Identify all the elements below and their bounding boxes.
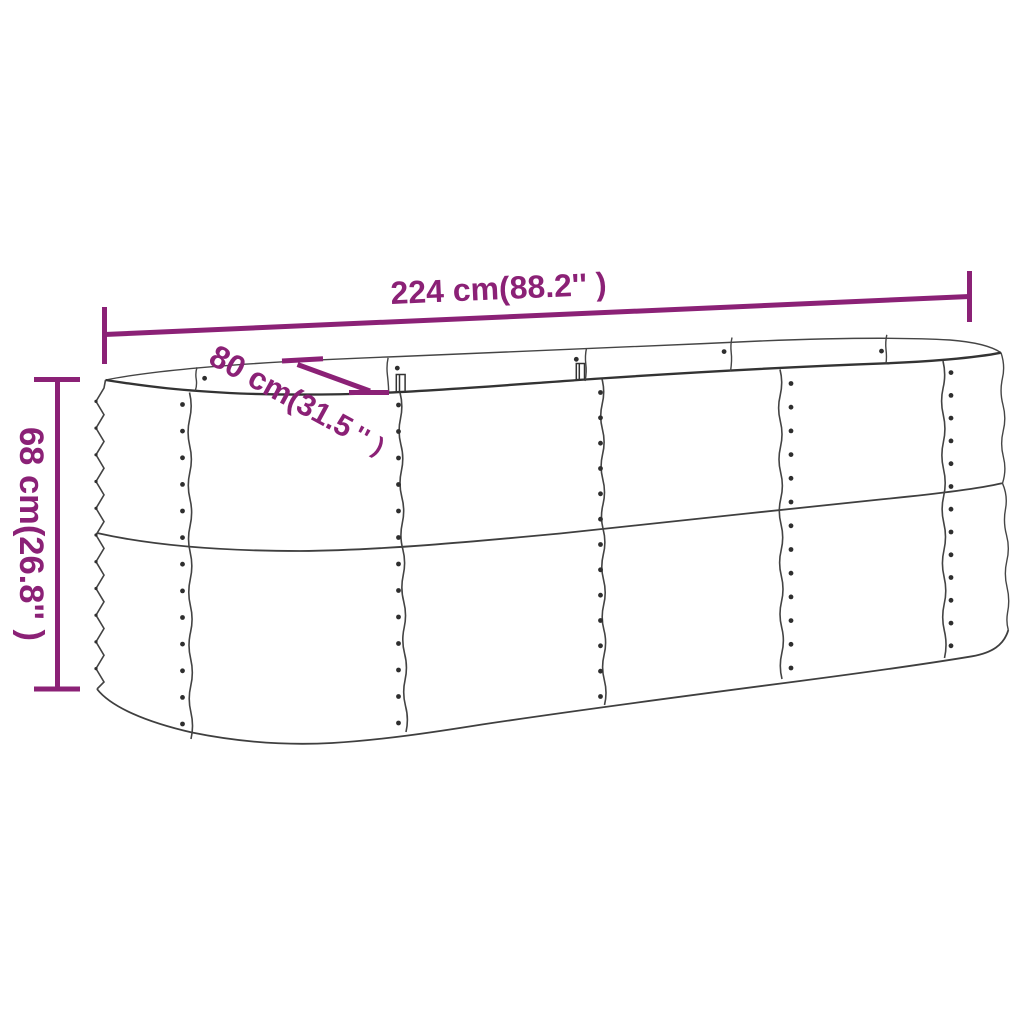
svg-text:68 cm(26.8'' ): 68 cm(26.8'' ) (12, 427, 50, 641)
